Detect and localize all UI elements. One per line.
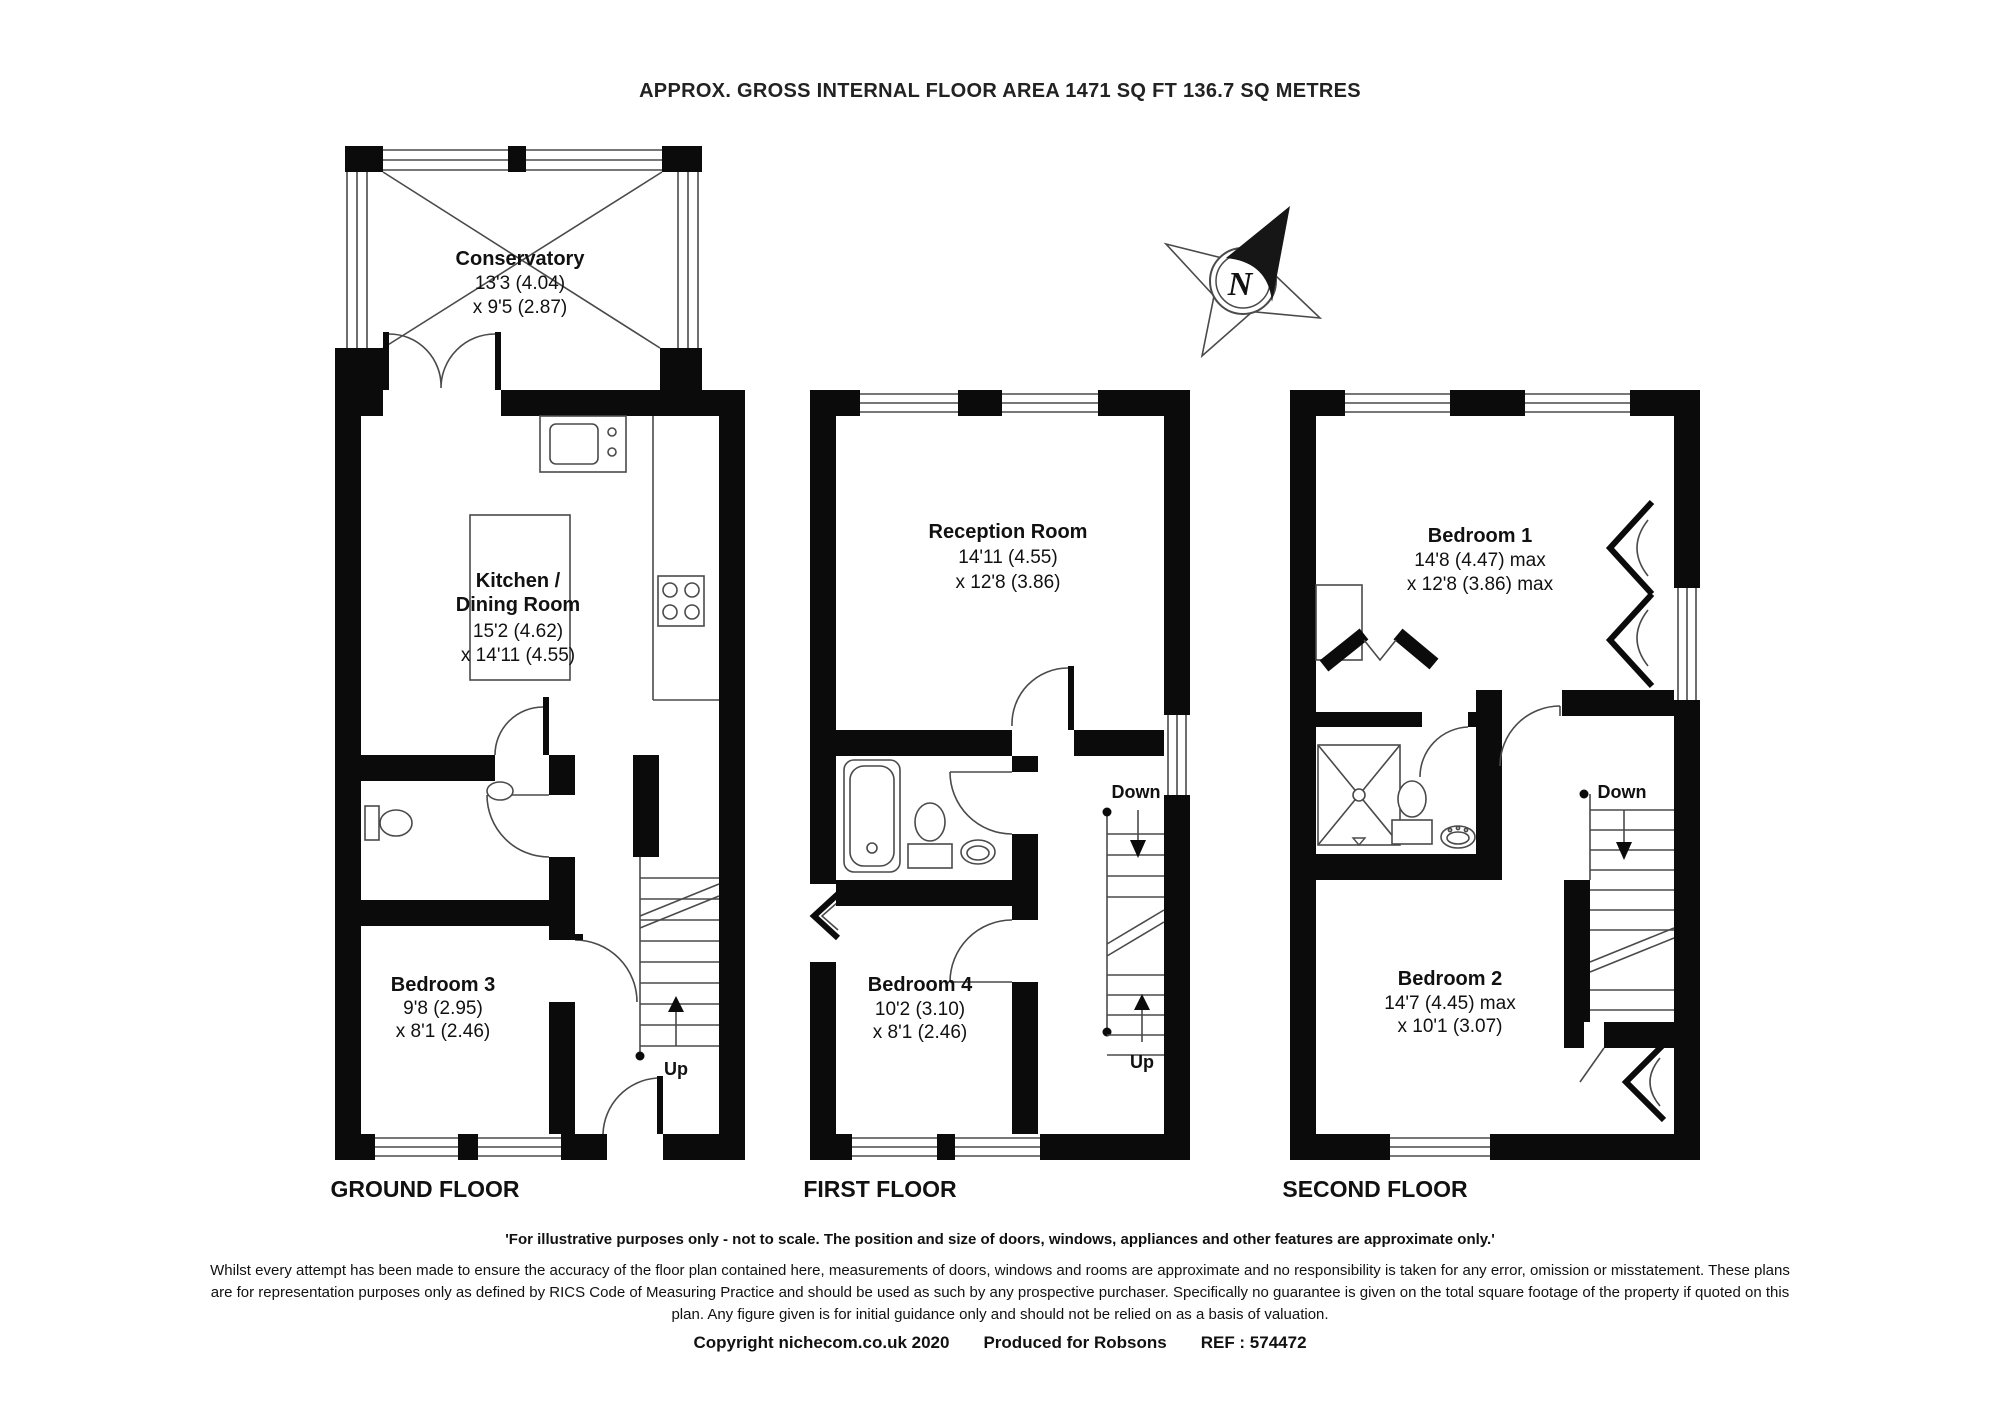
first-window-top-right xyxy=(1002,394,1098,412)
conservatory-dim1: 13'3 (4.04) xyxy=(475,273,565,294)
kitchen-dim1: 15'2 (4.62) xyxy=(473,621,563,642)
reception-door xyxy=(1012,666,1074,730)
wc-basin xyxy=(487,782,513,800)
front-door xyxy=(603,1076,663,1134)
first-sink-icon xyxy=(961,840,995,864)
bedroom2-dim2: x 10'1 (3.07) xyxy=(1397,1016,1502,1037)
first-window-bottom-right xyxy=(955,1138,1040,1156)
first-toilet-icon xyxy=(908,803,952,868)
kitchen-name2: Dining Room xyxy=(456,594,580,616)
second-floor-plan: Bedroom 1 14'8 (4.47) max x 12'8 (3.86) … xyxy=(1285,385,1705,1170)
disclaimer-paragraph: Whilst every attempt has been made to en… xyxy=(210,1260,1790,1326)
page-title: APPROX. GROSS INTERNAL FLOOR AREA 1471 S… xyxy=(0,80,2000,103)
copyright-line: Copyright nichecom.co.uk 2020 Produced f… xyxy=(0,1333,2000,1353)
second-window-bottom xyxy=(1390,1138,1490,1156)
first-window-bottom-left xyxy=(852,1138,937,1156)
bedroom2-wardrobe xyxy=(1626,1044,1664,1120)
reception-dim1: 14'11 (4.55) xyxy=(958,547,1057,568)
bedroom4-door xyxy=(950,920,1012,982)
compass-north-label: N xyxy=(1227,266,1254,303)
kitchen-door xyxy=(495,697,549,755)
illustrative-notice: 'For illustrative purposes only - not to… xyxy=(0,1231,2000,1248)
ground-floor-label: GROUND FLOOR xyxy=(330,1176,519,1203)
wc-door xyxy=(487,795,549,857)
bedroom4-dim2: x 8'1 (2.46) xyxy=(873,1022,967,1043)
conservatory-window-right xyxy=(678,172,698,348)
second-stairs: Down xyxy=(1564,782,1674,1082)
first-up-label: Up xyxy=(1130,1052,1154,1072)
bedroom3-door xyxy=(575,934,637,1002)
bedroom1-name: Bedroom 1 xyxy=(1428,525,1532,547)
shower-icon xyxy=(1318,745,1400,845)
bedroom1-dormer xyxy=(1324,634,1434,666)
kitchen-counter xyxy=(653,416,719,700)
floorplan-page: APPROX. GROSS INTERNAL FLOOR AREA 1471 S… xyxy=(0,0,2000,1414)
ground-stairs: Up xyxy=(636,857,720,1079)
bedroom4-name: Bedroom 4 xyxy=(868,974,973,996)
produced-for-text: Produced for Robsons xyxy=(983,1333,1166,1353)
second-down-label: Down xyxy=(1598,782,1647,802)
down-arrow xyxy=(1616,810,1632,860)
bedroom1-wardrobe xyxy=(1610,502,1652,686)
ground-up-label: Up xyxy=(664,1059,688,1079)
ground-floor-plan: Conservatory 13'3 (4.04) x 9'5 (2.87) xyxy=(330,140,750,1170)
bedroom4-bay-windows xyxy=(814,894,838,938)
conservatory-window-left xyxy=(347,172,367,348)
bedroom3-dim2: x 8'1 (2.46) xyxy=(396,1021,490,1042)
bathroom-door xyxy=(950,772,1012,834)
kitchen-name1: Kitchen / xyxy=(476,570,561,592)
first-window-right xyxy=(1168,715,1186,795)
bath-icon xyxy=(844,760,900,872)
bedroom2-name: Bedroom 2 xyxy=(1398,968,1502,990)
kitchen-dim2: x 14'11 (4.55) xyxy=(461,645,575,666)
bedroom1-dim2: x 12'8 (3.86) max xyxy=(1407,574,1554,595)
first-window-top-left xyxy=(860,394,958,412)
second-window-right xyxy=(1678,588,1696,700)
bedroom1-door xyxy=(1500,706,1560,766)
first-stairs: Down Up xyxy=(1103,782,1165,1072)
reception-dim2: x 12'8 (3.86) xyxy=(955,572,1060,593)
kitchen-sink xyxy=(540,416,626,472)
conservatory-dim2: x 9'5 (2.87) xyxy=(473,297,567,318)
kitchen-hob xyxy=(658,576,704,626)
bedroom2-dim1: 14'7 (4.45) max xyxy=(1384,993,1516,1014)
wc-toilet xyxy=(365,806,412,840)
ground-window-bottom-left xyxy=(375,1138,458,1156)
conservatory-name: Conservatory xyxy=(456,248,586,270)
first-floor-plan: Reception Room 14'11 (4.55) x 12'8 (3.86… xyxy=(805,385,1200,1170)
shower-room-door xyxy=(1420,727,1468,777)
french-doors xyxy=(383,332,501,390)
bedroom2-door xyxy=(1580,1048,1604,1082)
first-floor-label: FIRST FLOOR xyxy=(803,1176,956,1203)
second-floor-label: SECOND FLOOR xyxy=(1282,1176,1467,1203)
compass-rose: N xyxy=(1150,180,1380,410)
bedroom1-dim1: 14'8 (4.47) max xyxy=(1414,550,1546,571)
second-window-top-right xyxy=(1525,394,1630,412)
ground-window-bottom-right xyxy=(478,1138,561,1156)
conservatory: Conservatory 13'3 (4.04) x 9'5 (2.87) xyxy=(335,146,702,390)
second-sink-icon xyxy=(1441,826,1475,848)
reference-number: REF : 574472 xyxy=(1201,1333,1307,1353)
first-down-label: Down xyxy=(1112,782,1161,802)
reception-name: Reception Room xyxy=(929,521,1088,543)
bedroom3-name: Bedroom 3 xyxy=(391,974,495,996)
copyright-text: Copyright nichecom.co.uk 2020 xyxy=(693,1333,949,1353)
bedroom3-dim1: 9'8 (2.95) xyxy=(403,998,483,1019)
bedroom4-dim1: 10'2 (3.10) xyxy=(875,999,965,1020)
